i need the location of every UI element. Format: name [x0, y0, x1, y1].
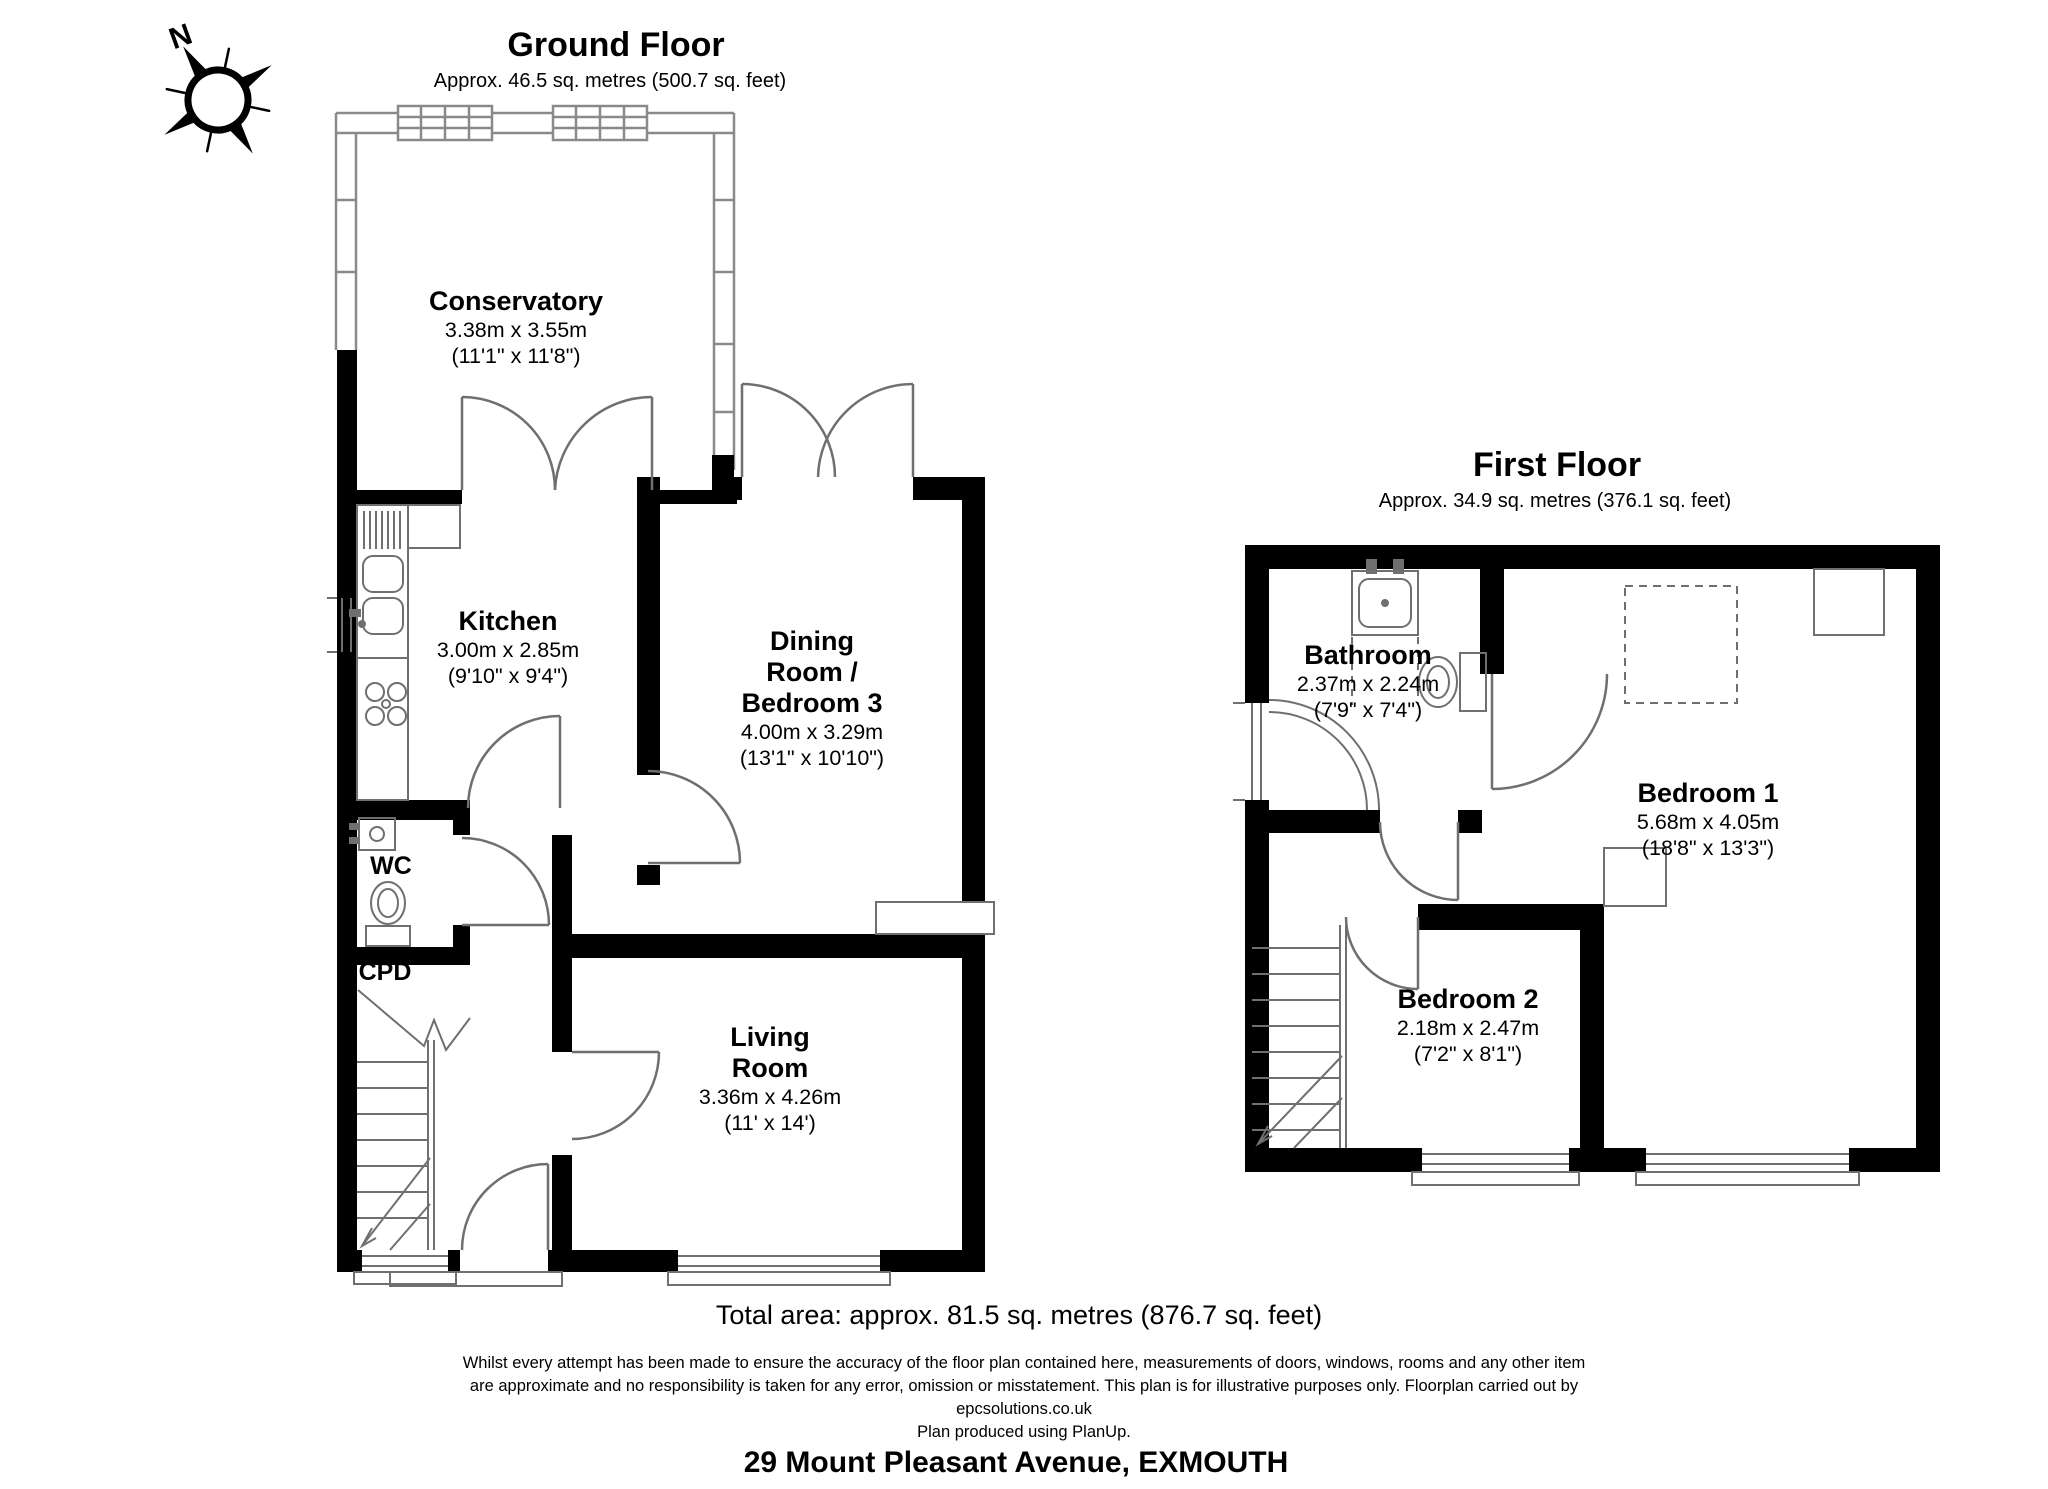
kitchen-dims-imperial: (9'10" x 9'4") [437, 663, 579, 689]
living-dims-metric: 3.36m x 4.26m [699, 1084, 841, 1110]
conservatory-dims-imperial: (11'1" x 11'8") [429, 343, 603, 369]
kitchen-name: Kitchen [437, 606, 579, 637]
ground-floor-doors [462, 384, 913, 1250]
floorplan-canvas: N [0, 0, 2048, 1489]
dining-name-line3: Bedroom 3 [740, 688, 884, 719]
wardrobe [1814, 569, 1884, 635]
disclaimer-line1: Whilst every attempt has been made to en… [463, 1352, 1586, 1375]
kitchen-dims-metric: 3.00m x 2.85m [437, 637, 579, 663]
dining-name-line2: Room / [740, 657, 884, 688]
bedroom2-dims-imperial: (7'2" x 8'1") [1397, 1041, 1539, 1067]
dining-chimney-breast [876, 902, 994, 934]
property-address: 29 Mount Pleasant Avenue, EXMOUTH [744, 1446, 1289, 1480]
bedroom1-name: Bedroom 1 [1637, 778, 1779, 809]
dining-room-label: Dining Room / Bedroom 3 4.00m x 3.29m (1… [740, 626, 884, 771]
bathroom-name: Bathroom [1297, 640, 1439, 671]
first-floor-area: Approx. 34.9 sq. metres (376.1 sq. feet) [1379, 490, 1731, 513]
bathroom-dims-metric: 2.37m x 2.24m [1297, 671, 1439, 697]
dining-dims-metric: 4.00m x 3.29m [740, 719, 884, 745]
bedroom2-name: Bedroom 2 [1397, 984, 1539, 1015]
bedroom1-label: Bedroom 1 5.68m x 4.05m (18'8" x 13'3") [1637, 778, 1779, 861]
living-room-label: Living Room 3.36m x 4.26m (11' x 14') [699, 1022, 841, 1136]
bathroom-label: Bathroom 2.37m x 2.24m (7'9" x 7'4") [1297, 640, 1439, 723]
ground-floor-stairs [357, 1040, 434, 1250]
cpd-label: CPD [359, 958, 412, 987]
disclaimer-line4: Plan produced using PlanUp. [463, 1421, 1586, 1444]
bedroom2-dims-metric: 2.18m x 2.47m [1397, 1015, 1539, 1041]
first-floor-title: First Floor [1473, 446, 1641, 485]
ground-floor-title: Ground Floor [507, 26, 724, 65]
disclaimer-text: Whilst every attempt has been made to en… [463, 1352, 1586, 1444]
disclaimer-line3: epcsolutions.co.uk [463, 1398, 1586, 1421]
living-dims-imperial: (11' x 14') [699, 1110, 841, 1136]
wc-basin [359, 818, 395, 850]
conservatory-name: Conservatory [429, 286, 603, 317]
floorplan-page: N [0, 0, 2048, 1489]
living-name-line2: Room [699, 1053, 841, 1084]
dining-name-line1: Dining [740, 626, 884, 657]
ground-floor-area: Approx. 46.5 sq. metres (500.7 sq. feet) [434, 70, 786, 93]
living-name-line1: Living [699, 1022, 841, 1053]
wc-label: WC [370, 852, 412, 881]
cupboard-door [358, 990, 470, 1050]
bedroom1-dims-imperial: (18'8" x 13'3") [1637, 835, 1779, 861]
compass-north-label: N [165, 18, 197, 56]
wc-fixtures [350, 818, 410, 946]
total-area-text: Total area: approx. 81.5 sq. metres (876… [716, 1300, 1322, 1331]
dining-dims-imperial: (13'1" x 10'10") [740, 745, 884, 771]
disclaimer-line2: are approximate and no responsibility is… [463, 1375, 1586, 1398]
conservatory-label: Conservatory 3.38m x 3.55m (11'1" x 11'8… [429, 286, 603, 369]
bedroom2-label: Bedroom 2 2.18m x 2.47m (7'2" x 8'1") [1397, 984, 1539, 1067]
bathroom-dims-imperial: (7'9" x 7'4") [1297, 697, 1439, 723]
kitchen-label: Kitchen 3.00m x 2.85m (9'10" x 9'4") [437, 606, 579, 689]
bedroom1-dims-metric: 5.68m x 4.05m [1637, 809, 1779, 835]
compass-icon: N [129, 11, 306, 188]
conservatory-dims-metric: 3.38m x 3.55m [429, 317, 603, 343]
bed-outline [1625, 586, 1737, 703]
